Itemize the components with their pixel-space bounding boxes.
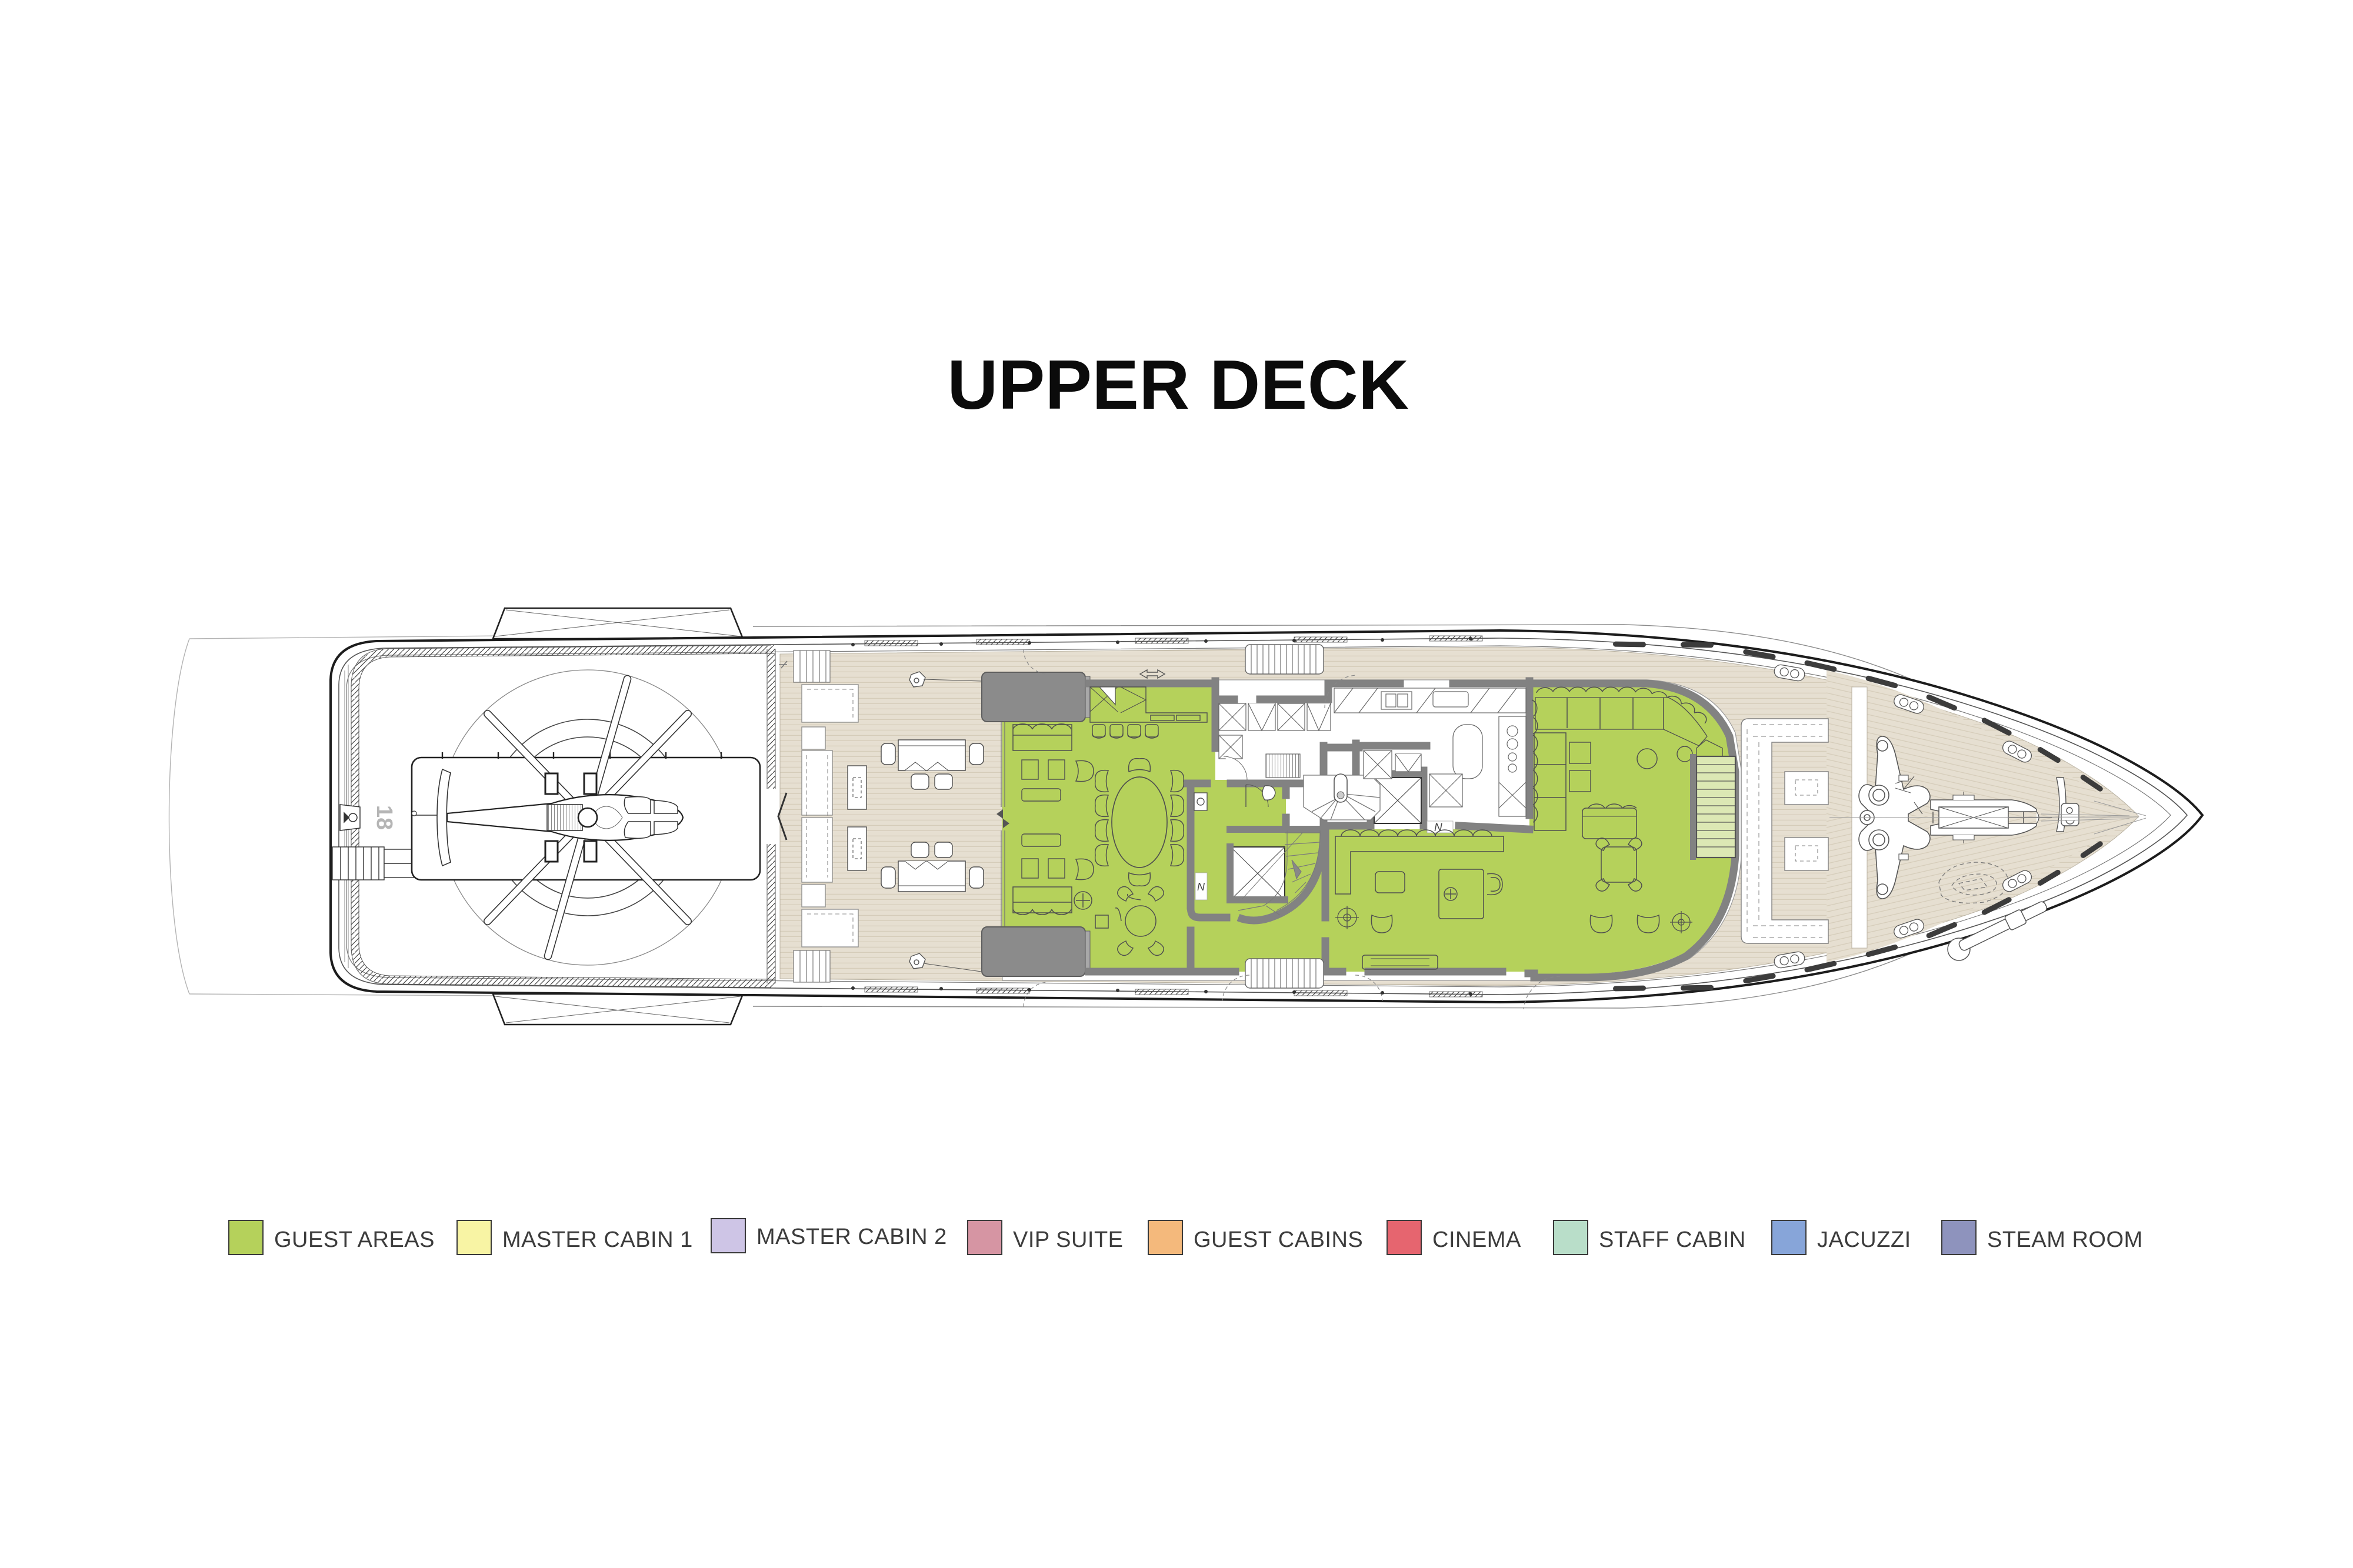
svg-text:18: 18 — [372, 805, 396, 830]
svg-text:JACUZZI: JACUZZI — [1817, 1227, 1911, 1252]
svg-text:MASTER CABIN 1: MASTER CABIN 1 — [502, 1227, 693, 1252]
svg-text:GUEST AREAS: GUEST AREAS — [274, 1227, 435, 1252]
svg-text:VIP SUITE: VIP SUITE — [1013, 1227, 1124, 1252]
svg-text:MASTER CABIN 2: MASTER CABIN 2 — [756, 1225, 947, 1249]
svg-text:STEAM ROOM: STEAM ROOM — [1987, 1227, 2143, 1252]
svg-text:CINEMA: CINEMA — [1432, 1227, 1521, 1252]
svg-text:N: N — [1197, 881, 1205, 893]
svg-text:GUEST CABINS: GUEST CABINS — [1194, 1227, 1363, 1252]
svg-text:STAFF CABIN: STAFF CABIN — [1599, 1227, 1746, 1252]
svg-text:UPPER DECK: UPPER DECK — [947, 346, 1409, 424]
